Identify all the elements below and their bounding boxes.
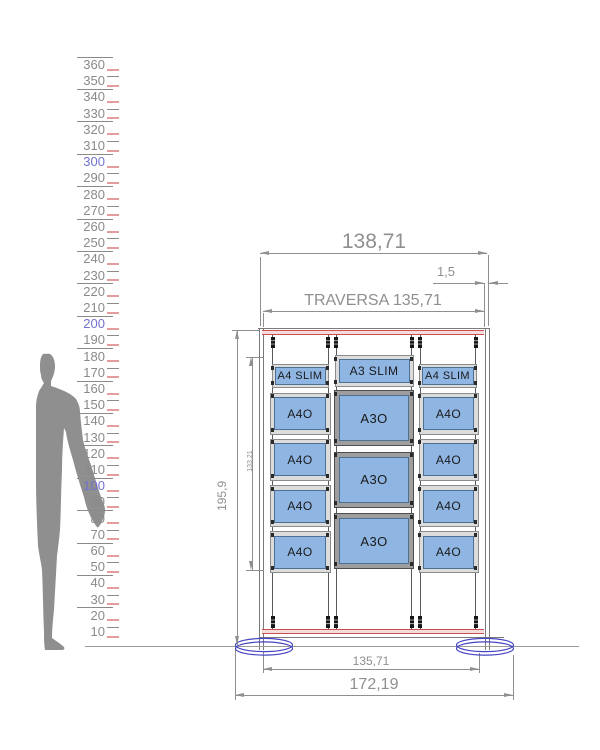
ruler-tick-grey [107, 562, 119, 563]
ruler-overline [77, 381, 113, 382]
dim-arrow [475, 309, 484, 313]
ruler-tick-red [107, 85, 119, 87]
panel-a4o: A4O [270, 485, 331, 527]
stand-right-inner-post [485, 328, 486, 650]
panel-label: A4O [436, 499, 461, 513]
panel-a3o: A3O [334, 452, 414, 508]
dim-arrow [504, 693, 513, 697]
panel-face: A4O [423, 536, 474, 569]
ruler-overline [77, 219, 113, 220]
ruler-tick-red [107, 474, 119, 476]
ruler-tick-red [107, 231, 119, 233]
panel-corner-dot [418, 533, 421, 537]
ruler-tick-grey [107, 76, 119, 77]
panel-corner-dot [326, 366, 329, 370]
panel-label: A4O [436, 453, 461, 467]
cable-connector [271, 337, 275, 348]
panel-corner-dot [326, 520, 329, 524]
ruler-overline [77, 543, 113, 544]
dim-arrow [489, 281, 498, 285]
panel-corner-dot [410, 453, 413, 457]
ruler-mark-label: 90 [70, 494, 105, 510]
dim-arrow [235, 330, 239, 339]
dim-arrow [235, 636, 239, 645]
panel-face: A4O [274, 397, 326, 430]
dimension-line [237, 330, 238, 645]
ruler-tick-red [107, 279, 119, 281]
panel-corner-dot [418, 520, 421, 524]
dim-panel-stack-height: 133,21 [247, 445, 255, 477]
panel-a4o: A4O [270, 393, 331, 435]
dim-arrow [249, 357, 253, 366]
ruler-mark-label: 280 [70, 187, 105, 203]
ruler-mark-label: 100 [70, 478, 105, 494]
cable-connector [334, 337, 338, 348]
ruler-mark-label: 20 [70, 608, 105, 624]
panel-face: A4O [423, 397, 474, 430]
dim-arrow [478, 251, 487, 255]
dim-overall-height: 195,9 [216, 474, 230, 518]
dimension-line [235, 695, 513, 696]
panel-face: A3O [339, 395, 409, 441]
panel-face: A4O [423, 443, 474, 476]
ruler-mark-label: 340 [70, 89, 105, 105]
stand-bottom-rail [262, 629, 484, 634]
ruler-tick-red [107, 441, 119, 443]
panel-corner-dot [334, 380, 337, 384]
cable-connector [410, 616, 414, 628]
panel-corner-dot [474, 566, 477, 570]
ruler-tick-red [107, 182, 119, 184]
panel-corner-dot [474, 366, 477, 370]
ruler-tick-grey [107, 465, 119, 466]
extension-line [488, 255, 489, 326]
panel-label: A4O [436, 545, 461, 559]
panel-corner-dot [474, 394, 477, 398]
ruler-mark-label: 60 [70, 543, 105, 559]
panel-a4o: A4O [419, 531, 479, 573]
ruler-tick-grey [107, 627, 119, 628]
ruler-tick-red [107, 360, 119, 362]
ruler-overline [77, 89, 113, 90]
panel-corner-dot [326, 440, 329, 444]
ruler-mark-label: 290 [70, 170, 105, 186]
ruler-mark-label: 300 [70, 154, 105, 170]
ruler-tick-grey [107, 335, 119, 336]
ruler-tick-red [107, 457, 119, 459]
ruler-mark-label: 40 [70, 575, 105, 591]
panel-label: A4O [436, 407, 461, 421]
base-foot-ellipse [457, 642, 514, 655]
ruler-overline [77, 57, 113, 58]
dim-arrow [263, 667, 272, 671]
panel-corner-dot [334, 501, 337, 505]
ruler-mark-label: 310 [70, 138, 105, 154]
panel-label: A4O [287, 407, 312, 421]
ruler-overline [77, 251, 113, 252]
ruler-tick-red [107, 198, 119, 200]
ruler-tick-red [107, 571, 119, 573]
panel-label: A4O [287, 453, 312, 467]
ruler-tick-grey [107, 238, 119, 239]
panel-corner-dot [326, 394, 329, 398]
ruler-tick-grey [107, 368, 119, 369]
panel-face: A3 SLIM [339, 359, 410, 383]
extension-line [484, 283, 485, 327]
ruler-overline [77, 413, 113, 414]
panel-face: A4O [274, 443, 326, 476]
cable-connector [410, 337, 414, 348]
panel-label: A4 SLIM [278, 370, 323, 382]
panel-corner-dot [410, 357, 413, 361]
ruler-overline [77, 575, 113, 576]
panel-corner-dot [410, 562, 413, 566]
cable-connector [418, 337, 422, 348]
panel-corner-dot [418, 566, 421, 570]
ruler-tick-red [107, 619, 119, 621]
panel-corner-dot [334, 392, 337, 396]
stand-top-edge [258, 328, 490, 329]
ruler-overline [77, 121, 113, 122]
panel-corner-dot [271, 487, 274, 491]
ruler-mark-label: 10 [70, 624, 105, 640]
ruler-tick-red [107, 603, 119, 605]
panel-corner-dot [410, 501, 413, 505]
panel-corner-dot [271, 566, 274, 570]
panel-corner-dot [326, 566, 329, 570]
ruler-mark-label: 320 [70, 122, 105, 138]
dim-edge-gap: 1,5 [424, 265, 468, 280]
panel-corner-dot [474, 520, 477, 524]
dim-base-span: 135,71 [263, 655, 479, 669]
panel-corner-dot [271, 381, 274, 385]
ruler-tick-red [107, 538, 119, 540]
panel-corner-dot [271, 474, 274, 478]
ruler-mark-label: 230 [70, 268, 105, 284]
panel-label: A3O [360, 472, 387, 487]
panel-corner-dot [326, 381, 329, 385]
panel-corner-dot [474, 440, 477, 444]
ruler-tick-red [107, 247, 119, 249]
base-foot-ellipse [236, 638, 293, 651]
ruler-mark-label: 330 [70, 106, 105, 122]
dimension-line [263, 669, 479, 670]
ruler-tick-grey [107, 109, 119, 110]
ruler-tick-red [107, 328, 119, 330]
panel-corner-dot [418, 394, 421, 398]
ruler-mark-label: 360 [70, 57, 105, 73]
cable-connector [326, 337, 330, 348]
cable-connector [418, 616, 422, 628]
ruler-tick-red [107, 409, 119, 411]
ruler-mark-label: 70 [70, 527, 105, 543]
panel-a3o: A3O [334, 390, 414, 446]
panel-a4-slim: A4 SLIM [419, 364, 477, 388]
dimension-line [263, 311, 484, 312]
ruler-tick-red [107, 117, 119, 119]
panel-corner-dot [334, 439, 337, 443]
ruler-mark-label: 250 [70, 235, 105, 251]
panel-a4-slim: A4 SLIM [272, 364, 329, 388]
dim-arrow [475, 281, 484, 285]
ruler-mark-label: 200 [70, 316, 105, 332]
panel-corner-dot [271, 440, 274, 444]
panel-corner-dot [418, 381, 421, 385]
panel-label: A4 SLIM [425, 370, 470, 382]
ruler-tick-grey [107, 141, 119, 142]
panel-face: A4 SLIM [422, 367, 474, 385]
panel-corner-dot [410, 439, 413, 443]
panel-corner-dot [271, 533, 274, 537]
ruler-mark-label: 130 [70, 430, 105, 446]
cable-connector [326, 616, 330, 628]
ruler-tick-red [107, 344, 119, 346]
panel-corner-dot [271, 428, 274, 432]
panel-corner-dot [474, 381, 477, 385]
extension-line [246, 570, 264, 571]
panel-a4o: A4O [419, 393, 479, 435]
extension-line [263, 313, 264, 327]
panel-label: A3O [360, 411, 387, 426]
ruler-mark-label: 110 [70, 462, 105, 478]
dim-arrow [260, 251, 269, 255]
panel-label: A4O [287, 499, 312, 513]
panel-a3-slim: A3 SLIM [335, 355, 414, 387]
ruler-overline [77, 316, 113, 317]
technical-drawing: 3603503403303203103002902802702602502402… [0, 0, 600, 750]
ruler-tick-red [107, 636, 119, 638]
panel-label: A4O [287, 545, 312, 559]
panel-corner-dot [418, 440, 421, 444]
ruler-tick-grey [107, 400, 119, 401]
extension-line [260, 257, 261, 326]
ruler-mark-label: 220 [70, 284, 105, 300]
ruler-tick-red [107, 376, 119, 378]
ruler-tick-red [107, 101, 119, 103]
ruler-mark-label: 160 [70, 381, 105, 397]
panel-corner-dot [418, 474, 421, 478]
panel-corner-dot [474, 428, 477, 432]
panel-corner-dot [271, 394, 274, 398]
panel-a4o: A4O [270, 531, 331, 573]
panel-corner-dot [326, 428, 329, 432]
ruler-mark-label: 350 [70, 73, 105, 89]
stand-top-rail [262, 330, 484, 335]
dim-arrow [263, 309, 272, 313]
ruler-tick-red [107, 263, 119, 265]
panel-corner-dot [271, 520, 274, 524]
ruler-tick-red [107, 150, 119, 152]
ruler-mark-label: 260 [70, 219, 105, 235]
ruler-overline [77, 478, 113, 479]
ruler-mark-label: 170 [70, 365, 105, 381]
panel-corner-dot [326, 474, 329, 478]
panel-corner-dot [334, 515, 337, 519]
panel-corner-dot [334, 562, 337, 566]
dim-traversa: TRAVERSA 135,71 [263, 292, 483, 310]
panel-corner-dot [410, 380, 413, 384]
panel-corner-dot [474, 487, 477, 491]
ruler-tick-grey [107, 303, 119, 304]
ruler-tick-red [107, 490, 119, 492]
stand-right-outer-post [489, 328, 490, 650]
ruler-tick-grey [107, 173, 119, 174]
ruler-tick-grey [107, 206, 119, 207]
ruler-mark-label: 140 [70, 413, 105, 429]
ruler-tick-red [107, 506, 119, 508]
panel-corner-dot [326, 487, 329, 491]
panel-corner-dot [418, 487, 421, 491]
panel-face: A4O [423, 490, 474, 523]
ruler-overline [77, 186, 113, 187]
ruler-mark-label: 30 [70, 592, 105, 608]
cable-connector [474, 616, 478, 628]
panel-face: A3O [339, 518, 409, 564]
panel-a4o: A4O [419, 439, 479, 481]
ruler-overline [77, 154, 113, 155]
ruler-mark-label: 240 [70, 251, 105, 267]
ruler-tick-red [107, 555, 119, 557]
cable-connector [271, 616, 275, 628]
dim-arrow [249, 561, 253, 570]
ruler-mark-label: 180 [70, 349, 105, 365]
ruler-tick-red [107, 587, 119, 589]
ruler-overline [77, 445, 113, 446]
dim-base-overall: 172,19 [235, 676, 513, 694]
stand-left-outer-post [259, 328, 260, 650]
ruler-tick-red [107, 522, 119, 524]
panel-corner-dot [334, 357, 337, 361]
panel-face: A4 SLIM [275, 367, 326, 385]
panel-corner-dot [334, 453, 337, 457]
ruler-overline [77, 510, 113, 511]
ruler-mark-label: 150 [70, 397, 105, 413]
ruler-mark-label: 210 [70, 300, 105, 316]
base-foot-ellipse [236, 642, 293, 655]
panel-corner-dot [474, 533, 477, 537]
panel-corner-dot [326, 533, 329, 537]
panel-corner-dot [474, 474, 477, 478]
ruler-tick-red [107, 166, 119, 168]
ruler-overline [77, 283, 113, 284]
base-foot-ellipse [457, 638, 514, 651]
dim-arrow [235, 693, 244, 697]
panel-corner-dot [418, 428, 421, 432]
panel-face: A4O [274, 490, 326, 523]
panel-a3o: A3O [334, 513, 414, 569]
ruler-tick-red [107, 69, 119, 71]
panel-a4o: A4O [419, 485, 479, 527]
ruler-tick-red [107, 393, 119, 395]
ruler-mark-label: 80 [70, 511, 105, 527]
ruler-tick-grey [107, 497, 119, 498]
ruler-tick-grey [107, 530, 119, 531]
ruler-tick-red [107, 133, 119, 135]
ruler-overline [77, 607, 113, 608]
ruler-mark-label: 120 [70, 446, 105, 462]
panel-corner-dot [410, 392, 413, 396]
ruler-mark-label: 270 [70, 203, 105, 219]
panel-a4o: A4O [270, 439, 331, 481]
ruler-tick-red [107, 425, 119, 427]
ruler-tick-grey [107, 595, 119, 596]
ruler-tick-grey [107, 433, 119, 434]
stand-left-inner-post [263, 328, 264, 650]
panel-corner-dot [418, 366, 421, 370]
panel-corner-dot [271, 366, 274, 370]
ruler-mark-label: 190 [70, 332, 105, 348]
panel-face: A3O [339, 457, 409, 503]
dim-arrow [470, 667, 479, 671]
panel-label: A3O [360, 534, 387, 549]
ruler-tick-grey [107, 271, 119, 272]
panel-corner-dot [410, 515, 413, 519]
ruler-tick-red [107, 312, 119, 314]
ruler-mark-label: 50 [70, 559, 105, 575]
panel-label: A3 SLIM [350, 364, 399, 378]
panel-face: A4O [274, 536, 326, 569]
ruler-tick-red [107, 295, 119, 297]
cable-connector [334, 616, 338, 628]
ruler-tick-red [107, 214, 119, 216]
ruler-overline [77, 348, 113, 349]
dim-overall-width: 138,71 [258, 230, 490, 254]
cable-connector [474, 337, 478, 348]
